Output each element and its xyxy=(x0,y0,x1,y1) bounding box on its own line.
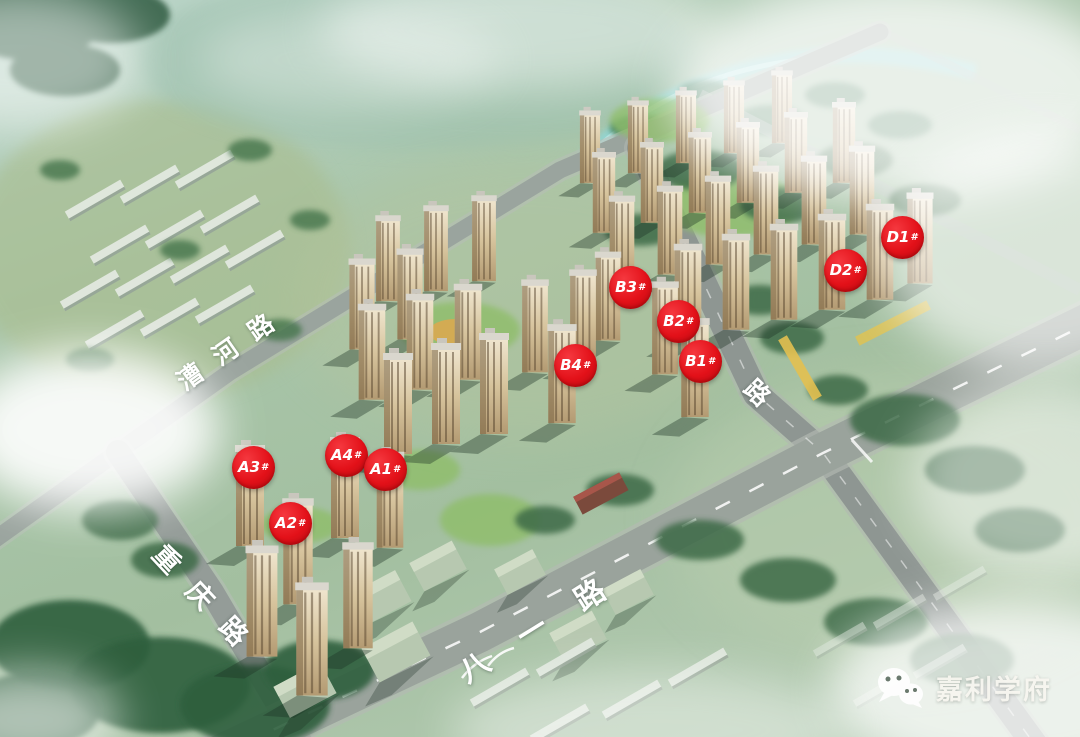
building-marker-a4: A4# xyxy=(325,434,368,477)
marker-suffix: # xyxy=(638,282,645,293)
building-marker-b1: B1# xyxy=(679,340,722,383)
marker-label: A1 xyxy=(370,460,392,478)
marker-suffix: # xyxy=(354,450,361,461)
marker-label: D2 xyxy=(830,261,853,279)
marker-suffix: # xyxy=(261,462,268,473)
marker-suffix: # xyxy=(583,360,590,371)
marker-label: B4 xyxy=(560,356,582,374)
road-label-bayi-road: 八一路 xyxy=(455,555,644,689)
building-marker-b4: B4# xyxy=(554,344,597,387)
marker-label: B1 xyxy=(685,352,707,370)
road-label-chongqing-road: 重庆路 xyxy=(147,541,267,667)
marker-suffix: # xyxy=(910,232,917,243)
building-marker-a1: A1# xyxy=(364,448,407,491)
building-marker-d1: D1# xyxy=(881,216,924,259)
marker-suffix: # xyxy=(393,464,400,475)
marker-suffix: # xyxy=(708,356,715,367)
marker-label: B2 xyxy=(663,312,685,330)
marker-label: A2 xyxy=(275,514,297,532)
building-marker-b3: B3# xyxy=(609,266,652,309)
building-marker-a3: A3# xyxy=(232,446,275,489)
building-marker-b2: B2# xyxy=(657,300,700,343)
marker-label: A4 xyxy=(331,446,353,464)
road-label-caohe-road: 漕河路 xyxy=(173,300,293,394)
building-marker-d2: D2# xyxy=(824,249,867,292)
building-marker-a2: A2# xyxy=(269,502,312,545)
annotation-overlay: 漕河路重庆路八一路路 A3#A4#A1#A2#B4#B3#B2#B1#D2#D1… xyxy=(0,0,1080,737)
marker-label: B3 xyxy=(615,278,637,296)
road-label-north-road-partial: 路 xyxy=(739,375,774,410)
marker-suffix: # xyxy=(686,316,693,327)
marker-label: A3 xyxy=(238,458,260,476)
marker-suffix: # xyxy=(298,518,305,529)
aerial-rendering: 漕河路重庆路八一路路 A3#A4#A1#A2#B4#B3#B2#B1#D2#D1… xyxy=(0,0,1080,737)
watermark-text: 嘉利学府 xyxy=(936,668,1052,707)
wechat-icon xyxy=(874,665,926,709)
marker-suffix: # xyxy=(853,265,860,276)
watermark: 嘉利学府 xyxy=(874,665,1052,709)
marker-label: D1 xyxy=(887,228,910,246)
